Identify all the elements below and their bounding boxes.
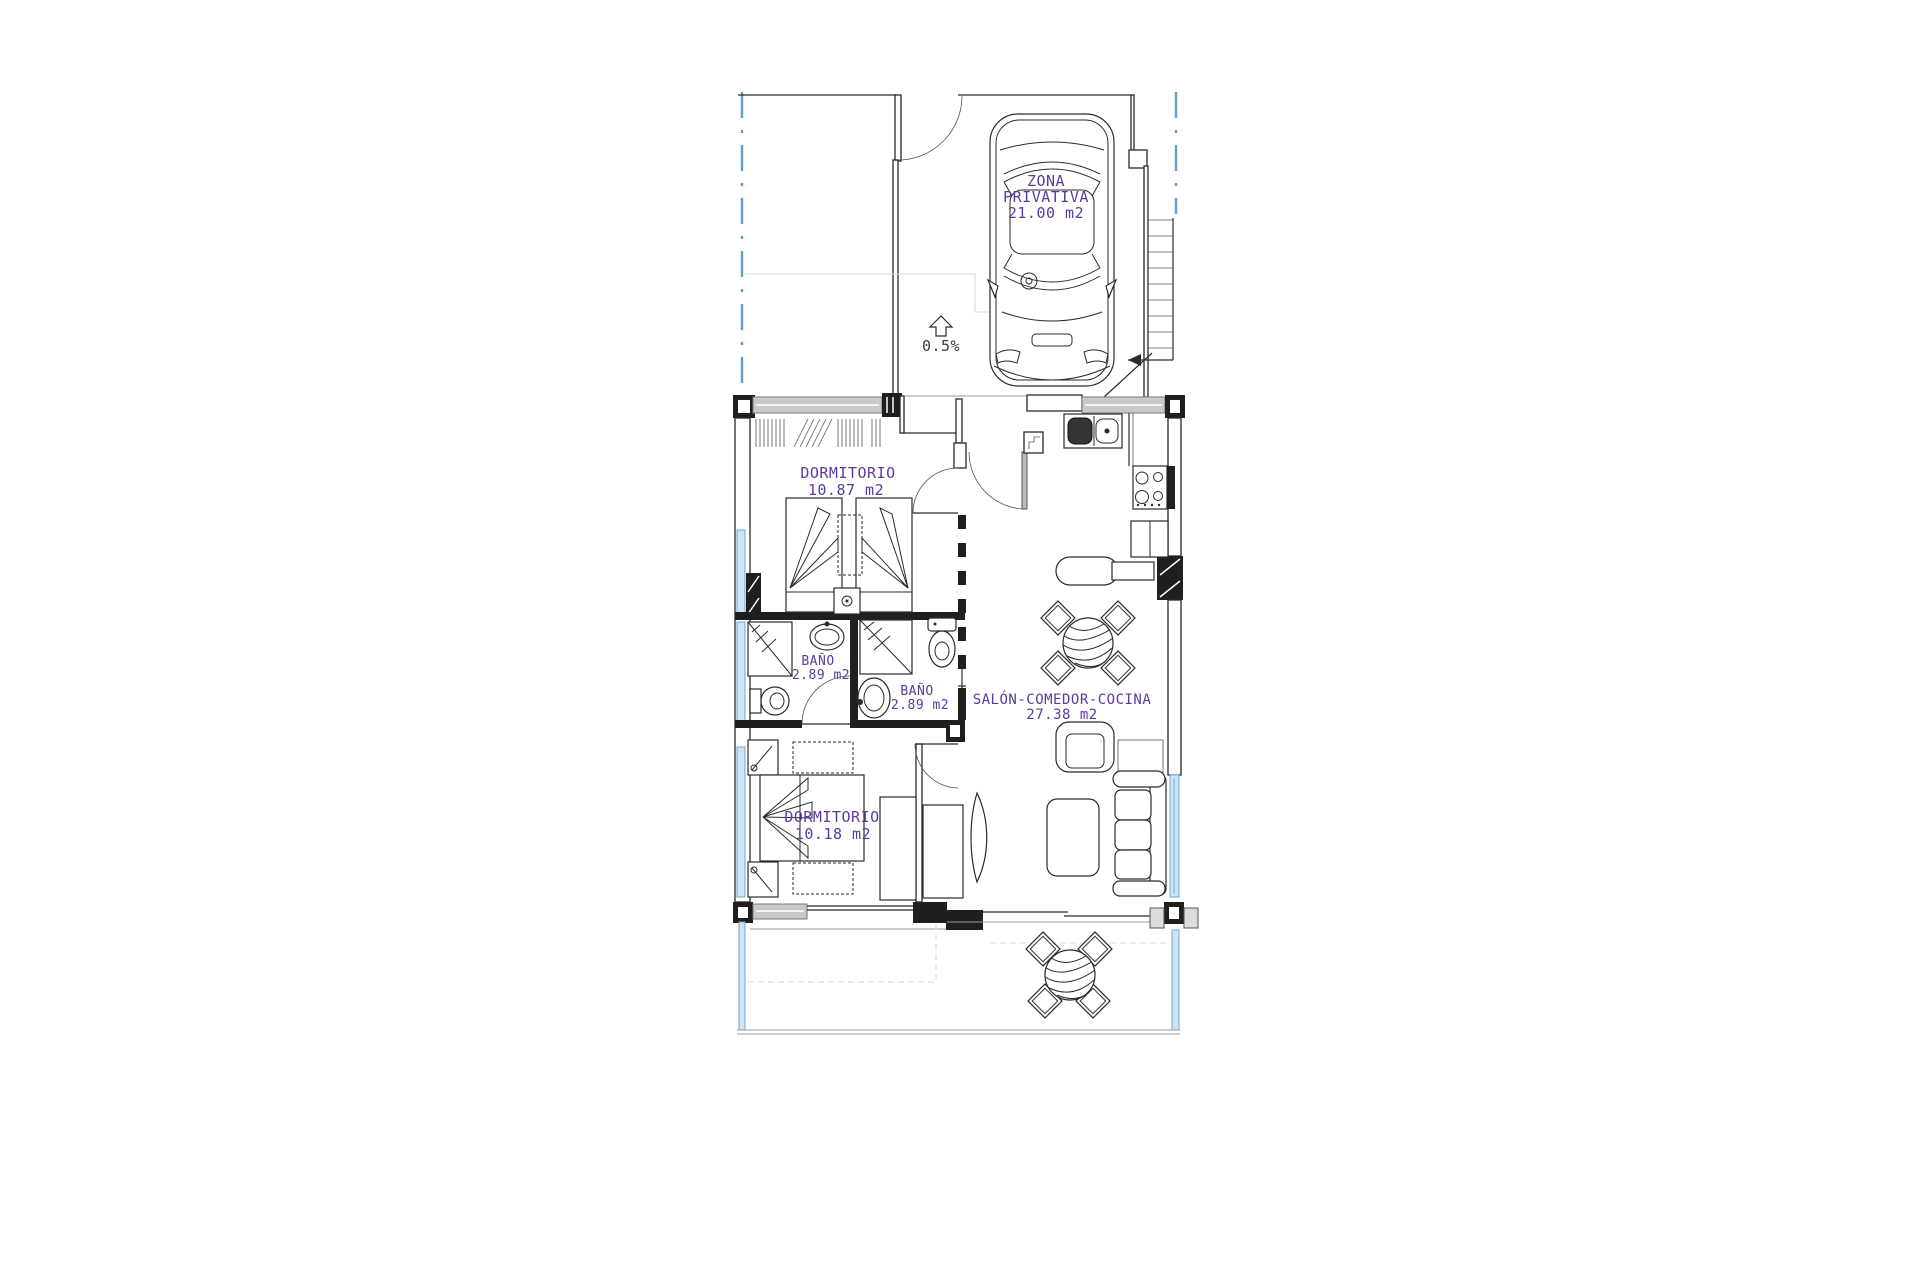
tv xyxy=(971,793,987,882)
dormitorio1-label: DORMITORIO xyxy=(800,464,895,482)
window-west-bath1 xyxy=(737,622,745,726)
window-west-bedroom2 xyxy=(737,747,745,897)
bathroom2: BAÑO 2.89 m2 xyxy=(857,618,956,718)
nightstand-top xyxy=(793,742,853,773)
bedroom1: DORMITORIO 10.87 m2 xyxy=(756,419,912,614)
terrace-rail-right xyxy=(1172,930,1179,1030)
terrace xyxy=(737,922,1180,1034)
floor-plan-page: 0.5% ZONA PRIVATIVA xyxy=(0,0,1920,1280)
closet xyxy=(880,797,916,900)
pocket-door xyxy=(958,515,966,688)
side-table xyxy=(1118,740,1163,774)
floor-plan-drawing: 0.5% ZONA PRIVATIVA xyxy=(0,0,1920,1280)
bano2-label: BAÑO xyxy=(900,683,933,699)
stove xyxy=(1133,466,1175,509)
kitchen-cabinet xyxy=(1131,521,1168,557)
bano1-label: BAÑO xyxy=(801,653,834,669)
paving-edge xyxy=(743,274,990,312)
svg-text:21.00 m2: 21.00 m2 xyxy=(1008,204,1084,222)
bano2-area: 2.89 m2 xyxy=(891,698,949,713)
nightstand-bottom xyxy=(793,863,853,894)
salon-furniture xyxy=(923,722,1166,898)
dormitorio2-label: DORMITORIO xyxy=(784,808,879,826)
entry-step-icon xyxy=(1024,432,1043,453)
salon-label: SALÓN-COMEDOR-COCINA xyxy=(973,690,1152,708)
sink2 xyxy=(857,678,890,718)
terrace-set xyxy=(1026,932,1112,1018)
shower2 xyxy=(860,620,912,674)
toilet2 xyxy=(928,618,956,667)
terrace-rail-left xyxy=(739,922,745,1030)
bathroom1: BAÑO 2.89 m2 xyxy=(748,622,850,725)
bath1-door xyxy=(802,676,850,724)
terrace-sliding-door xyxy=(946,908,1198,930)
coffee-table xyxy=(1047,799,1099,876)
dormitorio2-area: 10.18 m2 xyxy=(795,825,871,843)
slope-label: 0.5% xyxy=(922,337,960,355)
shower1 xyxy=(748,622,792,676)
fence xyxy=(893,160,898,395)
sink1 xyxy=(810,622,844,651)
armchair xyxy=(1056,722,1114,772)
wall-between-baths xyxy=(850,620,858,722)
tv-unit xyxy=(923,793,987,898)
dining-set xyxy=(1041,601,1135,685)
shutter-box-west xyxy=(746,573,761,617)
bano1-area: 2.89 m2 xyxy=(792,668,850,683)
toilet1 xyxy=(750,687,789,715)
bedroom2: DORMITORIO 10.18 m2 xyxy=(748,740,916,900)
car xyxy=(988,114,1116,386)
site-driveway: 0.5% ZONA PRIVATIVA xyxy=(738,92,1176,398)
kitchen-island xyxy=(1056,557,1154,585)
slope-arrow-icon xyxy=(930,316,952,336)
shutter-box-east xyxy=(1157,556,1183,600)
bedroom1-door xyxy=(913,468,958,513)
kitchen-sink xyxy=(1064,414,1122,448)
dormitorio1-area: 10.87 m2 xyxy=(808,481,884,499)
sofa xyxy=(1113,771,1166,896)
faucet xyxy=(1105,429,1110,434)
entry-door xyxy=(969,432,1043,509)
blinds-symbol xyxy=(756,419,880,447)
window-west-bedroom1 xyxy=(737,530,745,618)
double-bed xyxy=(786,498,912,614)
salon-area: 27.38 m2 xyxy=(1026,707,1097,723)
gate-door xyxy=(895,95,962,161)
